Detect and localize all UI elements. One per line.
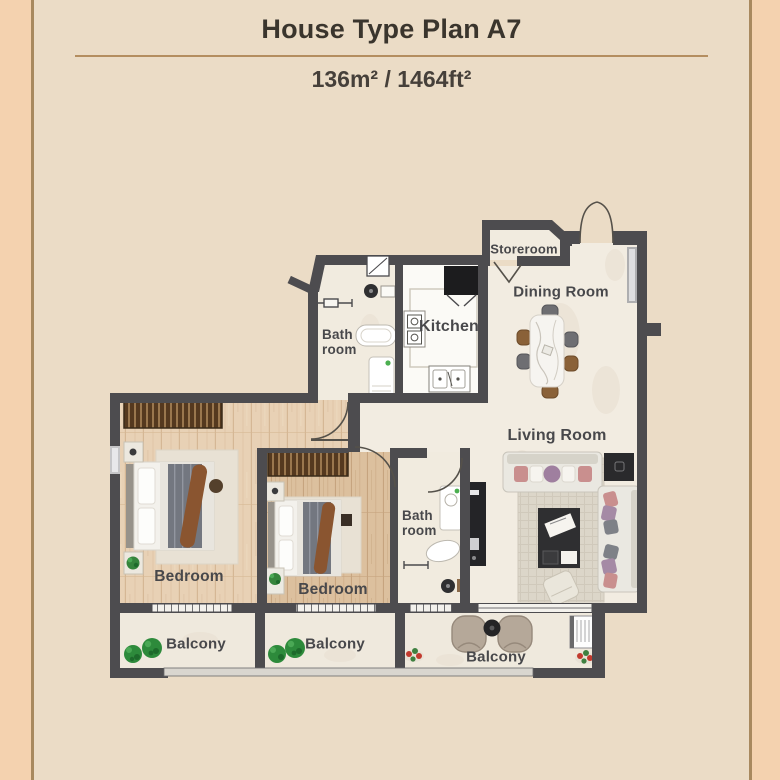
room-label-bedroom-middle: Bedroom <box>298 581 367 599</box>
room-label-living-room: Living Room <box>507 427 606 445</box>
pouf-icon <box>209 479 223 493</box>
bed-icon <box>268 500 341 576</box>
wardrobe-icon <box>268 452 348 476</box>
room-label-balcony-middle: Balcony <box>305 636 365 653</box>
armchair-icon <box>452 616 486 652</box>
room-label-balcony-right: Balcony <box>466 649 526 666</box>
floor-plan <box>0 0 780 780</box>
balcony-table-icon <box>484 620 501 637</box>
toilet-icon <box>369 357 394 397</box>
wardrobe-icon <box>124 402 222 428</box>
lamp-icon <box>272 488 278 494</box>
plant-icon <box>127 557 140 570</box>
window-balcony-middle <box>296 604 376 612</box>
bed-icon <box>126 462 214 550</box>
page: House Type Plan A7 136m² / 1464ft² <box>0 0 780 780</box>
window-bedroom-left <box>110 446 120 474</box>
plant-icon <box>266 568 284 594</box>
chaise-sofa-icon <box>598 486 640 592</box>
side-table-icon <box>604 453 634 481</box>
room-label-bathroom-lower: Bath room <box>402 509 450 538</box>
stool-icon <box>341 514 352 526</box>
window-balcony-right-small <box>410 604 452 612</box>
window-living-south <box>478 604 592 613</box>
sofa-icon <box>503 452 602 492</box>
room-label-bedroom-left: Bedroom <box>154 568 223 586</box>
wall-vent-icon <box>367 256 389 276</box>
lamp-icon <box>130 449 137 456</box>
room-label-kitchen: Kitchen <box>419 318 479 336</box>
room-label-storeroom: Storeroom <box>490 242 558 257</box>
room-label-balcony-left: Balcony <box>166 636 226 653</box>
entrance-double-door-icon <box>580 202 613 243</box>
room-label-bathroom-upper: Bath room <box>322 328 370 357</box>
coffee-table-icon <box>538 508 580 568</box>
kitchen-sink-icon <box>429 366 470 392</box>
window-balcony-left <box>152 604 232 612</box>
armchair-icon <box>498 616 532 652</box>
room-label-dining-room: Dining Room <box>513 284 609 301</box>
window-entry-right <box>627 247 637 303</box>
balcony-railing <box>164 668 533 676</box>
ac-unit-icon <box>570 616 595 648</box>
